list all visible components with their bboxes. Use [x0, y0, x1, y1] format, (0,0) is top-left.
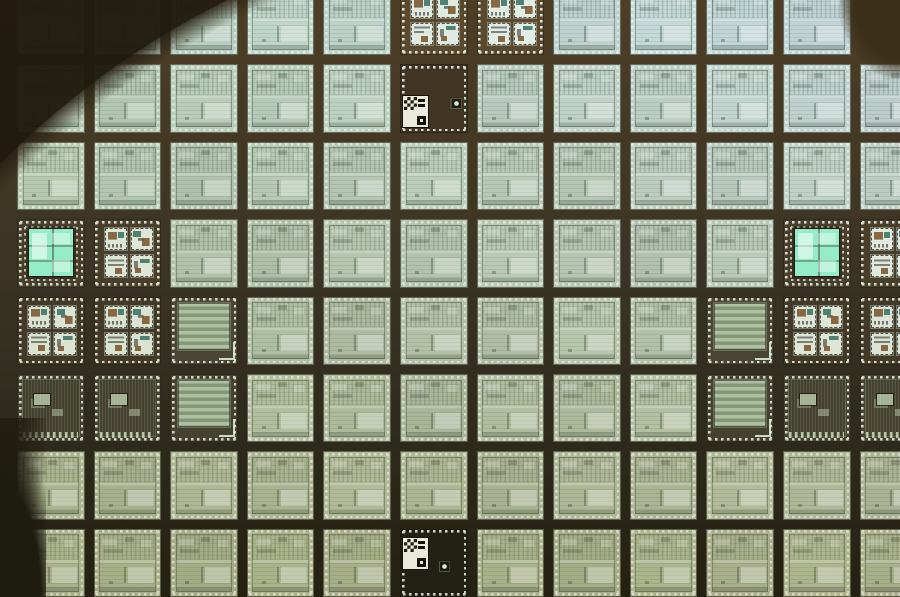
product-die: [630, 297, 698, 365]
circuit-core: [329, 70, 386, 127]
circuit-core: [865, 147, 900, 204]
circuit-core: [99, 534, 156, 591]
circuit-core: [482, 147, 539, 204]
test-structure-square: [54, 306, 76, 328]
product-die: [553, 219, 621, 287]
capacitor-test-die: [170, 297, 238, 365]
product-die: [630, 0, 698, 55]
circuit-core: [252, 302, 309, 359]
bond-pads: [785, 376, 850, 441]
product-die: [630, 142, 698, 210]
circuit-core: [176, 70, 233, 127]
circuit-core: [559, 302, 616, 359]
circuit-core: [252, 70, 309, 127]
capacitor-test-die: [706, 374, 774, 442]
test-structure-square: [871, 306, 893, 328]
product-die: [170, 219, 238, 287]
product-die: [323, 374, 391, 442]
circuit-core: [865, 534, 900, 591]
product-die: [17, 529, 85, 597]
product-die: [400, 374, 468, 442]
circuit-core: [635, 147, 692, 204]
product-die: [17, 451, 85, 519]
product-die: [477, 64, 545, 132]
circuit-core: [559, 70, 616, 127]
product-die: [400, 219, 468, 287]
circuit-core: [23, 147, 80, 204]
product-die: [170, 142, 238, 210]
circuit-core: [482, 302, 539, 359]
product-die: [323, 142, 391, 210]
test-structure-square: [488, 0, 510, 18]
product-die: [323, 64, 391, 132]
test-window: [111, 394, 127, 405]
circuit-core: [789, 457, 846, 514]
test-structure-square: [871, 333, 893, 355]
circuit-core: [559, 380, 616, 437]
circuit-core: [252, 457, 309, 514]
product-die: [323, 0, 391, 55]
circuit-core: [329, 457, 386, 514]
test-structure-square: [514, 0, 536, 18]
test-structure-square: [105, 333, 127, 355]
circuit-core: [176, 225, 233, 282]
circuit-core: [559, 225, 616, 282]
product-die: [630, 529, 698, 597]
bond-pads: [19, 376, 84, 441]
test-structure-square: [897, 255, 900, 277]
product-die: [17, 0, 85, 55]
comb-pattern: [100, 432, 155, 438]
test-window-small: [129, 409, 140, 416]
product-die: [247, 142, 315, 210]
test-structure-square: [437, 0, 459, 18]
product-die: [247, 529, 315, 597]
circuit-core: [712, 534, 769, 591]
circuit-core: [176, 457, 233, 514]
product-die: [706, 451, 774, 519]
capacitor-test-die: [706, 297, 774, 365]
product-die: [400, 297, 468, 365]
metal-test-die: [94, 374, 162, 442]
test-structure-square: [131, 306, 153, 328]
circuit-core: [252, 380, 309, 437]
street-fiducial-port: [452, 99, 461, 108]
test-structure-square: [105, 306, 127, 328]
circuit-core: [559, 0, 616, 50]
test-structure-square: [411, 23, 433, 45]
pcm-test-die-quad: [17, 297, 85, 365]
product-die: [323, 297, 391, 365]
test-structure-square: [131, 333, 153, 355]
circuit-core: [329, 380, 386, 437]
bond-pads: [95, 376, 160, 441]
circuit-core: [712, 225, 769, 282]
test-window-small: [895, 409, 900, 416]
test-structure-square: [131, 228, 153, 250]
product-die: [17, 64, 85, 132]
alignment-mark-die: [400, 529, 468, 597]
product-die: [247, 374, 315, 442]
circuit-core: [712, 147, 769, 204]
test-structure-square: [28, 306, 50, 328]
circuit-core: [482, 457, 539, 514]
circuit-core: [252, 147, 309, 204]
circuit-core: [635, 70, 692, 127]
test-structure-square: [871, 228, 893, 250]
circuit-core: [23, 534, 80, 591]
test-structure-square: [411, 0, 433, 18]
pcm-test-die-large: [783, 219, 851, 287]
alignment-mark: [402, 95, 429, 128]
product-die: [170, 451, 238, 519]
metal-test-die: [783, 374, 851, 442]
product-die: [247, 64, 315, 132]
test-structure-square: [131, 255, 153, 277]
contact-dot: [417, 116, 426, 125]
test-window-small: [52, 409, 63, 416]
circuit-core: [252, 0, 309, 50]
product-die: [94, 142, 162, 210]
street-fiducial-port: [440, 562, 449, 571]
pcm-test-die-large: [17, 219, 85, 287]
test-structure-square: [871, 255, 893, 277]
metal-test-die: [860, 374, 900, 442]
circuit-core: [406, 457, 463, 514]
test-structure-square: [820, 306, 842, 328]
test-window: [877, 394, 893, 405]
trace-bracket: [755, 342, 771, 360]
product-die: [477, 529, 545, 597]
test-structure-square: [897, 306, 900, 328]
circuit-core: [99, 70, 156, 127]
product-die: [170, 529, 238, 597]
trace-bracket: [755, 419, 771, 437]
metal-test-die: [17, 374, 85, 442]
circuit-core: [482, 225, 539, 282]
circuit-core: [559, 147, 616, 204]
product-die: [860, 142, 900, 210]
product-die: [400, 451, 468, 519]
product-die: [477, 142, 545, 210]
wafer-photograph: [0, 0, 900, 597]
test-window: [800, 394, 816, 405]
test-structure-square: [897, 333, 900, 355]
product-die: [247, 297, 315, 365]
product-die: [553, 297, 621, 365]
circuit-core: [329, 302, 386, 359]
product-die: [630, 374, 698, 442]
test-structure-square: [488, 23, 510, 45]
product-die: [247, 219, 315, 287]
product-die: [706, 64, 774, 132]
pcm-test-die-quad: [94, 219, 162, 287]
product-die: [477, 219, 545, 287]
circuit-core: [329, 225, 386, 282]
test-structure-panel: [794, 228, 840, 277]
product-die: [553, 529, 621, 597]
circuit-core: [635, 302, 692, 359]
pcm-test-die-quad: [94, 297, 162, 365]
product-die: [94, 0, 162, 55]
pcm-test-die-quad: [860, 219, 900, 287]
test-window: [34, 394, 50, 405]
pcm-test-die-quad: [783, 297, 851, 365]
product-die: [860, 529, 900, 597]
test-structure-square: [105, 255, 127, 277]
circuit-core: [406, 302, 463, 359]
checkerboard-pattern: [404, 539, 417, 552]
circuit-core: [789, 147, 846, 204]
product-die: [323, 451, 391, 519]
circuit-core: [23, 0, 80, 50]
circuit-core: [559, 457, 616, 514]
product-die: [630, 219, 698, 287]
test-window-small: [818, 409, 829, 416]
product-die: [630, 451, 698, 519]
test-structure-square: [437, 23, 459, 45]
circuit-core: [789, 534, 846, 591]
product-die: [94, 529, 162, 597]
pcm-test-die-quad: [400, 0, 468, 55]
product-die: [706, 0, 774, 55]
circuit-core: [329, 0, 386, 50]
product-die: [477, 297, 545, 365]
trace-bracket: [219, 342, 235, 360]
circuit-core: [252, 534, 309, 591]
circuit-core: [406, 225, 463, 282]
product-die: [477, 374, 545, 442]
product-die: [553, 0, 621, 55]
comb-pattern: [789, 432, 844, 438]
product-die: [783, 0, 851, 55]
product-die: [706, 529, 774, 597]
circuit-core: [99, 0, 156, 50]
comb-pattern: [866, 432, 900, 438]
circuit-core: [176, 147, 233, 204]
product-die: [783, 451, 851, 519]
circuit-core: [482, 380, 539, 437]
circuit-core: [712, 70, 769, 127]
pcm-test-die-quad: [860, 297, 900, 365]
trace-bracket: [219, 419, 235, 437]
circuit-core: [635, 0, 692, 50]
product-die: [94, 64, 162, 132]
circuit-core: [99, 147, 156, 204]
product-die: [783, 529, 851, 597]
product-die: [860, 451, 900, 519]
test-structure-square: [514, 23, 536, 45]
circuit-core: [406, 147, 463, 204]
street-fiducial-dash: [424, 29, 430, 33]
product-die: [323, 219, 391, 287]
product-die: [17, 142, 85, 210]
circuit-core: [635, 457, 692, 514]
circuit-core: [406, 380, 463, 437]
product-die: [553, 142, 621, 210]
test-structure-square: [794, 306, 816, 328]
product-die: [553, 451, 621, 519]
product-die: [94, 451, 162, 519]
test-structure-square: [897, 228, 900, 250]
alignment-mark: [402, 537, 429, 570]
circuit-core: [99, 457, 156, 514]
circuit-core: [712, 457, 769, 514]
product-die: [783, 64, 851, 132]
circuit-core: [482, 70, 539, 127]
circuit-core: [865, 70, 900, 127]
circuit-core: [635, 225, 692, 282]
circuit-core: [23, 457, 80, 514]
capacitor-test-die: [170, 374, 238, 442]
circuit-core: [635, 380, 692, 437]
circuit-core: [176, 534, 233, 591]
product-die: [400, 142, 468, 210]
test-structure-square: [28, 333, 50, 355]
circuit-core: [789, 70, 846, 127]
circuit-core: [23, 70, 80, 127]
product-die: [247, 451, 315, 519]
product-die: [783, 142, 851, 210]
test-structure-square: [105, 228, 127, 250]
circuit-core: [329, 534, 386, 591]
product-die: [323, 529, 391, 597]
pcm-test-die-quad: [477, 0, 545, 55]
circuit-core: [252, 225, 309, 282]
product-die: [630, 64, 698, 132]
product-die: [860, 64, 900, 132]
contact-dot: [417, 558, 426, 567]
product-die: [553, 374, 621, 442]
test-structure-panel: [28, 228, 74, 277]
product-die: [477, 451, 545, 519]
circuit-core: [789, 0, 846, 50]
circuit-core: [176, 0, 233, 50]
checkerboard-pattern: [404, 97, 417, 110]
circuit-core: [865, 457, 900, 514]
product-die: [247, 0, 315, 55]
test-structure-square: [794, 333, 816, 355]
product-die: [553, 64, 621, 132]
circuit-core: [329, 147, 386, 204]
circuit-core: [635, 534, 692, 591]
test-structure-square: [54, 333, 76, 355]
product-die: [170, 0, 238, 55]
product-die: [706, 219, 774, 287]
product-die: [706, 142, 774, 210]
circuit-core: [559, 534, 616, 591]
comb-pattern: [23, 432, 78, 438]
circuit-core: [712, 0, 769, 50]
circuit-core: [482, 534, 539, 591]
test-structure-square: [820, 333, 842, 355]
product-die: [170, 64, 238, 132]
